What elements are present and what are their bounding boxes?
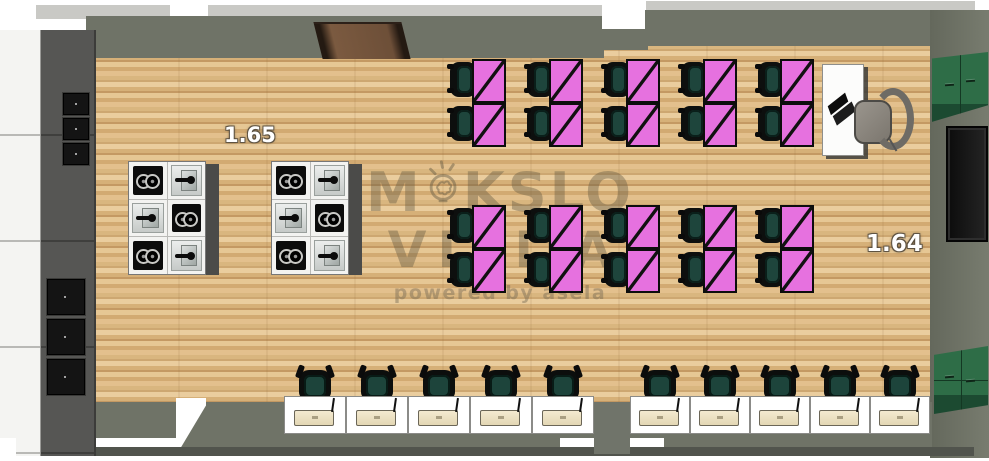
computer-station bbox=[470, 370, 532, 436]
laptop-icon bbox=[294, 410, 334, 426]
student-desk bbox=[703, 249, 737, 293]
laptop-icon bbox=[879, 410, 919, 426]
student-desk bbox=[472, 59, 506, 103]
island-unit-sink bbox=[168, 237, 206, 274]
room-number-label: 1.65 bbox=[224, 123, 276, 147]
cooktop-icon bbox=[133, 166, 163, 195]
student-desk bbox=[549, 103, 583, 147]
student-desk bbox=[703, 103, 737, 147]
student-desk bbox=[780, 205, 814, 249]
island-unit-cooktop bbox=[272, 237, 310, 274]
island-unit-cooktop bbox=[168, 200, 206, 237]
computer-desk bbox=[870, 396, 930, 434]
computer-desk bbox=[346, 396, 408, 434]
student-desk bbox=[472, 205, 506, 249]
oven-icon bbox=[46, 318, 86, 356]
computer-station bbox=[346, 370, 408, 436]
student-desk bbox=[549, 59, 583, 103]
student-desk-pair bbox=[450, 59, 508, 147]
island-unit-sink bbox=[168, 162, 206, 199]
computer-station bbox=[630, 370, 690, 436]
laptop-icon bbox=[699, 410, 739, 426]
oven-icon bbox=[62, 117, 90, 141]
cooktop-icon bbox=[172, 204, 202, 233]
computer-desk bbox=[810, 396, 870, 434]
student-desk bbox=[780, 103, 814, 147]
island-grid bbox=[271, 161, 349, 275]
computer-desk bbox=[408, 396, 470, 434]
student-desk-pair bbox=[604, 205, 662, 293]
faucet-icon bbox=[318, 254, 334, 258]
laptop-icon bbox=[819, 410, 859, 426]
student-desk bbox=[472, 103, 506, 147]
computer-station bbox=[408, 370, 470, 436]
computer-desk bbox=[470, 396, 532, 434]
floor-plan-render: M KSLO VIZIJA powered by asela bbox=[0, 0, 989, 461]
student-desk bbox=[626, 205, 660, 249]
student-desk-pair bbox=[527, 59, 585, 147]
student-desk bbox=[780, 59, 814, 103]
room-number-label: 1.64 bbox=[866, 231, 923, 257]
student-desk bbox=[626, 103, 660, 147]
island-unit-cooktop bbox=[311, 200, 349, 237]
kitchen-island bbox=[128, 161, 220, 275]
island-shadow bbox=[349, 164, 362, 275]
student-desk-pair bbox=[681, 205, 739, 293]
cooktop-icon bbox=[315, 204, 345, 233]
island-shadow bbox=[206, 164, 219, 275]
student-desk-pair bbox=[450, 205, 508, 293]
student-desk-pair bbox=[681, 59, 739, 147]
faucet-icon bbox=[175, 254, 191, 258]
sink-icon bbox=[314, 165, 346, 196]
student-desk bbox=[549, 205, 583, 249]
sink-icon bbox=[171, 240, 203, 271]
student-desk bbox=[626, 59, 660, 103]
student-desk bbox=[703, 59, 737, 103]
computer-desk bbox=[750, 396, 810, 434]
computer-station bbox=[284, 370, 346, 436]
cooktop-icon bbox=[276, 166, 306, 195]
student-desk-pair bbox=[758, 59, 816, 147]
laptop-icon bbox=[759, 410, 799, 426]
cooktop-icon bbox=[276, 241, 306, 270]
computer-desk bbox=[532, 396, 594, 434]
laptop-icon bbox=[480, 410, 520, 426]
furniture-layer bbox=[0, 0, 989, 461]
island-unit-sink bbox=[129, 200, 167, 237]
faucet-icon bbox=[175, 178, 191, 182]
laptop-icon bbox=[542, 410, 582, 426]
faucet-icon bbox=[136, 216, 152, 220]
oven-icon bbox=[62, 142, 90, 166]
cooktop-icon bbox=[133, 241, 163, 270]
student-desk bbox=[703, 205, 737, 249]
student-desk-pair bbox=[758, 205, 816, 293]
island-unit-sink bbox=[272, 200, 310, 237]
computer-desk bbox=[690, 396, 750, 434]
island-unit-sink bbox=[311, 162, 349, 199]
sink-icon bbox=[171, 165, 203, 196]
island-unit-cooktop bbox=[129, 162, 167, 199]
laptop-icon bbox=[639, 410, 679, 426]
computer-station bbox=[532, 370, 594, 436]
student-desk bbox=[626, 249, 660, 293]
student-desk-pair bbox=[604, 59, 662, 147]
kitchen-island bbox=[271, 161, 363, 275]
student-desk bbox=[472, 249, 506, 293]
computer-station bbox=[750, 370, 810, 436]
faucet-icon bbox=[279, 216, 295, 220]
computer-station bbox=[870, 370, 930, 436]
island-grid bbox=[128, 161, 206, 275]
computer-station bbox=[810, 370, 870, 436]
computer-desk bbox=[630, 396, 690, 434]
laptop-icon bbox=[356, 410, 396, 426]
computer-desk bbox=[284, 396, 346, 434]
island-unit-cooktop bbox=[272, 162, 310, 199]
sink-icon bbox=[132, 203, 164, 234]
computer-station bbox=[690, 370, 750, 436]
oven-icon bbox=[46, 278, 86, 316]
oven-icon bbox=[62, 92, 90, 116]
sink-icon bbox=[275, 203, 307, 234]
student-desk-pair bbox=[527, 205, 585, 293]
student-desk bbox=[549, 249, 583, 293]
student-desk bbox=[780, 249, 814, 293]
faucet-icon bbox=[318, 178, 334, 182]
oven-icon bbox=[46, 358, 86, 396]
island-unit-sink bbox=[311, 237, 349, 274]
island-unit-cooktop bbox=[129, 237, 167, 274]
sink-icon bbox=[314, 240, 346, 271]
laptop-icon bbox=[418, 410, 458, 426]
